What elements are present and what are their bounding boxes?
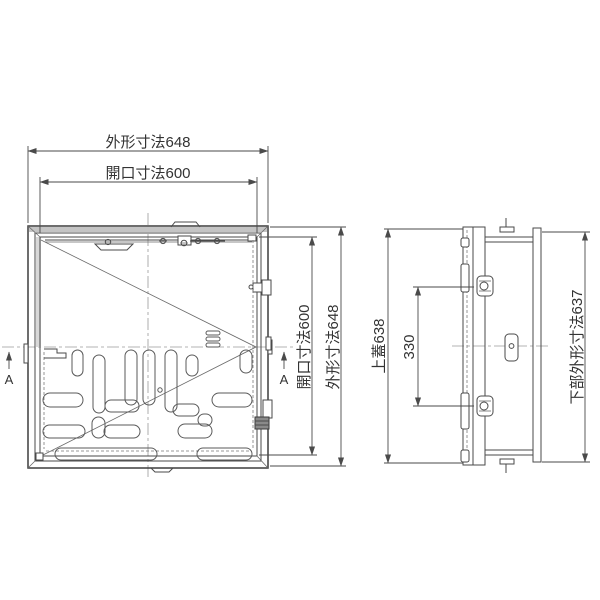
dim-top-lid-label: 上蓋638: [371, 318, 388, 373]
plan-view: [2, 213, 296, 478]
corner-notch: [44, 349, 66, 358]
left-edge-lug: [24, 344, 28, 363]
right-edge-tab: [266, 337, 271, 350]
lid-edge: [40, 237, 257, 456]
diagonal-lower: [43, 347, 256, 455]
bar-end-block: [248, 235, 256, 241]
frame-top-band: [29, 227, 267, 232]
hinge-knuckle-lower: [477, 396, 493, 416]
section-label-right: A: [280, 372, 289, 387]
dim-opening-width-label: 開口寸法600: [105, 165, 190, 182]
lower-frame-bar: [533, 228, 541, 462]
dim-outer-width-label: 外形寸法648: [105, 134, 190, 151]
labels: 外形寸法648 開口寸法600 開口寸法600 外形寸法648 上蓋638 33…: [5, 134, 586, 405]
hinge-knuckle-upper: [477, 276, 493, 296]
anchor-clip-bottom: [500, 459, 514, 473]
dim-opening-height-label: 開口寸法600: [296, 304, 313, 389]
drain-hole: [158, 388, 162, 392]
diagonal-upper: [41, 240, 256, 347]
anchor-clip-top: [500, 218, 514, 232]
corner-block: [36, 453, 43, 460]
section-label-left: A: [5, 372, 14, 387]
technical-drawing: 外形寸法648 開口寸法600 開口寸法600 外形寸法648 上蓋638 33…: [0, 0, 600, 600]
vent-slots: [206, 331, 220, 347]
dim-outer-height-label: 外形寸法648: [325, 304, 342, 389]
arm-bracket: [95, 244, 133, 250]
drawing-canvas: 外形寸法648 開口寸法600 開口寸法600 外形寸法648 上蓋638 33…: [0, 0, 600, 600]
dim-lower-outer-label: 下部外形寸法637: [569, 289, 586, 404]
side-view: [452, 218, 548, 473]
keeper-plate: [505, 334, 518, 361]
dim-hinge-pitch-label: 330: [401, 334, 418, 359]
tread-pattern: [43, 350, 252, 460]
handle: [249, 280, 271, 295]
latch: [255, 400, 272, 429]
hinge-leaf-tabs: [461, 238, 469, 462]
